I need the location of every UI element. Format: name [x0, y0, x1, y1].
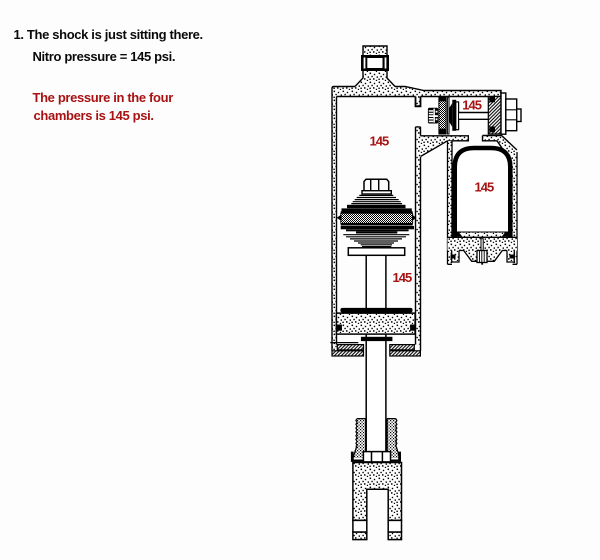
svg-text:145: 145 — [393, 270, 412, 285]
svg-text:145: 145 — [462, 98, 481, 113]
svg-text:145: 145 — [370, 134, 389, 149]
svg-text:145: 145 — [475, 180, 494, 195]
